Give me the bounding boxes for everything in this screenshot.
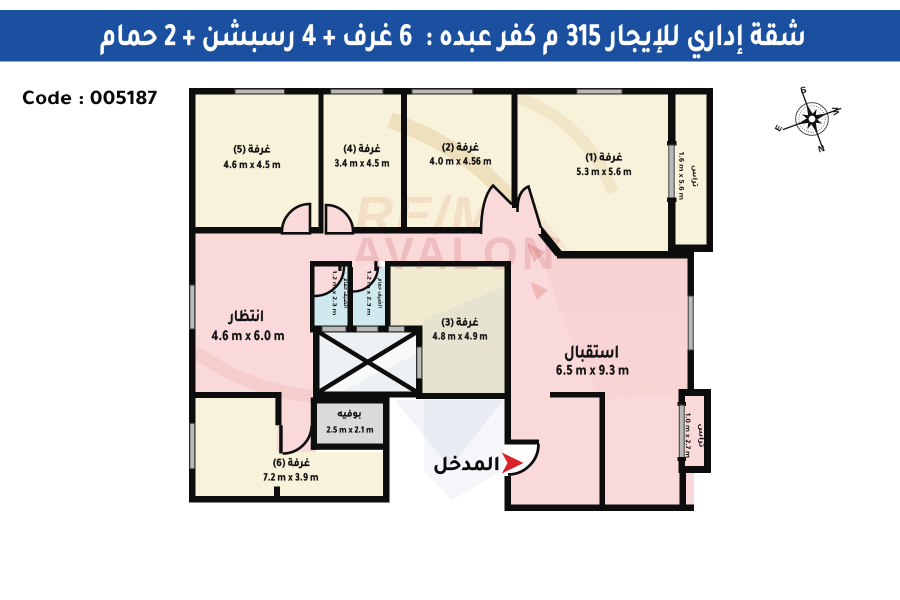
svg-text:AVALON: AVALON: [351, 228, 558, 279]
